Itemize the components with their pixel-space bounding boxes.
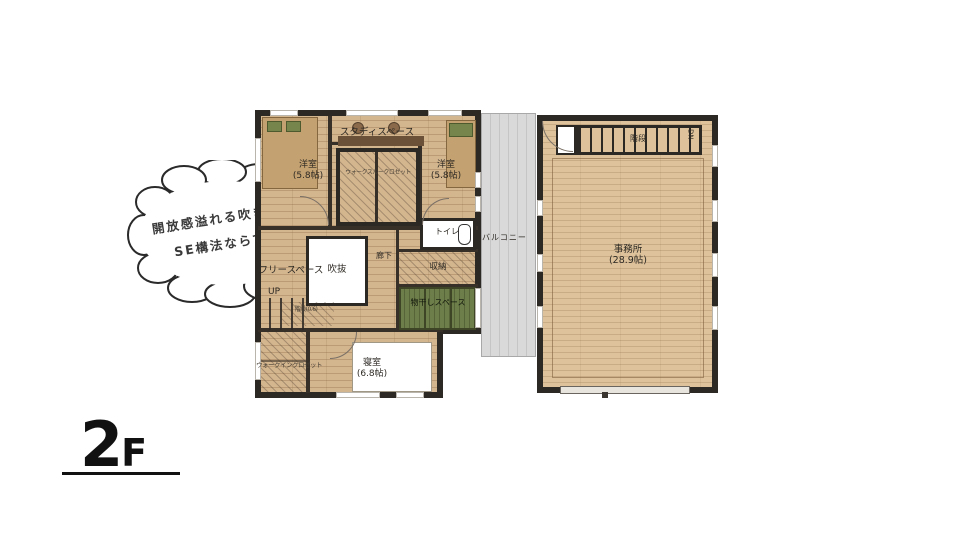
door-knob [602, 392, 608, 398]
window [346, 110, 398, 116]
wall [450, 287, 452, 330]
label-walkin-closet: ウォークインクロゼット [248, 362, 330, 370]
window [537, 306, 543, 328]
label-master-bedroom: 寝室 (6.8帖) [342, 358, 402, 380]
label-stair-landing-note: 階段(0.6) [278, 306, 334, 313]
floor-indicator: 2F [80, 408, 147, 481]
floor-plan-page: 開放感溢れる吹き抜けは SE構法ならでは。 [0, 0, 980, 540]
window [537, 200, 543, 216]
window [712, 306, 718, 330]
window [336, 392, 380, 398]
window [712, 253, 718, 277]
window [396, 392, 424, 398]
wall [424, 287, 426, 330]
label-toilet: トイレ [428, 227, 466, 237]
floor-number: 2 [80, 408, 121, 481]
label-up: UP [268, 287, 296, 298]
pillow [286, 121, 301, 132]
floor-letter: F [121, 431, 147, 475]
window [537, 254, 543, 272]
label-hallway: 廊下 [372, 251, 396, 261]
window [428, 110, 462, 116]
office-sliding-door [560, 386, 690, 394]
window [712, 145, 718, 167]
window [255, 138, 261, 182]
window [475, 196, 481, 212]
window [712, 200, 718, 222]
pillow [449, 123, 473, 137]
floor-indicator-underline [62, 472, 180, 475]
label-dn: DN [686, 129, 694, 140]
drying-space-area [399, 287, 476, 330]
label-drying-space: 物干しスペース [400, 298, 476, 308]
pillow [267, 121, 282, 132]
label-balcony: バルコニー [482, 233, 526, 243]
wall [437, 328, 443, 398]
label-study-space: スタディスペース [332, 127, 422, 138]
label-walkthrough-closet: ウォークスルークロゼット [337, 169, 419, 176]
office-rug-outline [552, 158, 704, 378]
label-storage: 収納 [420, 262, 456, 272]
window [270, 110, 298, 116]
window [475, 288, 481, 328]
label-office: 事務所 (28.9帖) [590, 244, 666, 267]
label-bedroom-left: 洋室 (5.8帖) [278, 160, 338, 182]
label-bedroom-right: 洋室 (5.8帖) [416, 160, 476, 182]
wall [375, 152, 378, 222]
walkthrough-closet-area [336, 148, 420, 226]
label-free-space: フリースペース [246, 265, 336, 276]
label-stairs: 階段 [622, 134, 654, 144]
